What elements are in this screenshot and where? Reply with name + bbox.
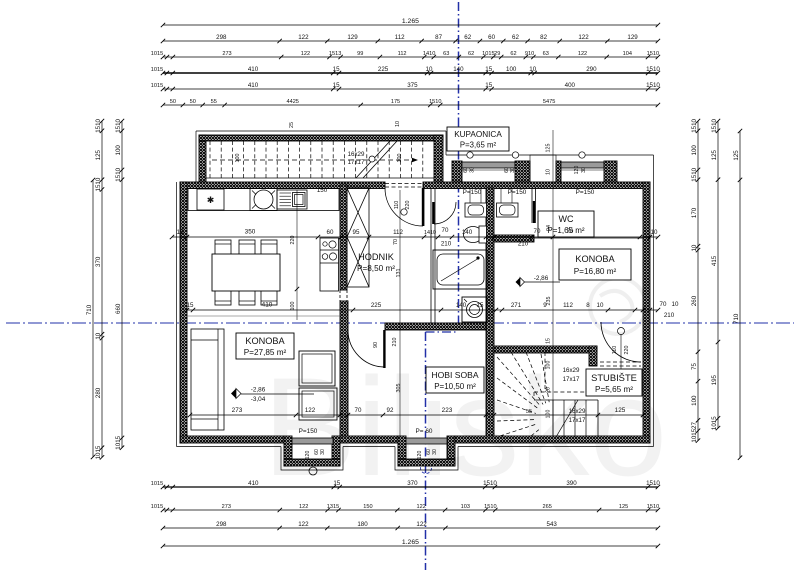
svg-text:175: 175 bbox=[391, 99, 400, 105]
svg-text:KUPAONICA: KUPAONICA bbox=[454, 130, 502, 139]
svg-text:1513: 1513 bbox=[329, 51, 341, 57]
svg-text:220: 220 bbox=[290, 236, 296, 245]
svg-text:10: 10 bbox=[426, 66, 433, 73]
svg-text:125: 125 bbox=[619, 504, 628, 510]
svg-text:223: 223 bbox=[442, 407, 453, 414]
svg-text:15: 15 bbox=[485, 82, 492, 89]
svg-text:10: 10 bbox=[597, 302, 604, 309]
svg-text:-3,04: -3,04 bbox=[251, 396, 266, 403]
svg-text:10: 10 bbox=[95, 332, 102, 339]
svg-text:P=3,65 m²: P=3,65 m² bbox=[460, 141, 497, 150]
svg-text:125: 125 bbox=[615, 407, 626, 414]
svg-text:1510: 1510 bbox=[647, 504, 659, 510]
svg-text:375: 375 bbox=[407, 82, 418, 89]
svg-text:100: 100 bbox=[546, 361, 552, 370]
svg-text:17x17: 17x17 bbox=[569, 417, 586, 424]
svg-text:210: 210 bbox=[392, 338, 398, 347]
svg-text:131: 131 bbox=[396, 269, 402, 278]
svg-text:100: 100 bbox=[397, 154, 403, 163]
svg-text:16x29: 16x29 bbox=[348, 151, 365, 158]
svg-text:400: 400 bbox=[565, 82, 576, 89]
svg-text:20: 20 bbox=[546, 387, 552, 393]
svg-text:50: 50 bbox=[170, 99, 176, 105]
svg-text:10: 10 bbox=[395, 121, 401, 127]
svg-text:94: 94 bbox=[546, 225, 552, 231]
svg-text:710: 710 bbox=[733, 313, 740, 324]
svg-text:210: 210 bbox=[441, 241, 452, 248]
svg-text:120: 120 bbox=[417, 451, 423, 460]
svg-text:P=16,80 m²: P=16,80 m² bbox=[574, 267, 617, 276]
svg-text:17x17: 17x17 bbox=[348, 159, 365, 166]
svg-text:350: 350 bbox=[245, 229, 256, 236]
svg-text:P= 60: P= 60 bbox=[416, 428, 433, 435]
svg-text:55: 55 bbox=[526, 409, 532, 415]
svg-text:220: 220 bbox=[405, 201, 411, 210]
svg-text:17x17: 17x17 bbox=[563, 376, 580, 383]
svg-text:1510: 1510 bbox=[646, 82, 660, 89]
svg-text:70: 70 bbox=[393, 239, 399, 245]
svg-text:63: 63 bbox=[543, 51, 549, 57]
svg-text:95: 95 bbox=[353, 229, 360, 236]
svg-text:70: 70 bbox=[534, 228, 541, 235]
svg-text:HOBI SOBA: HOBI SOBA bbox=[431, 370, 479, 380]
svg-text:195: 195 bbox=[711, 374, 718, 385]
svg-text:660: 660 bbox=[115, 303, 122, 314]
svg-text:30: 30 bbox=[320, 449, 326, 455]
svg-text:110: 110 bbox=[612, 346, 618, 355]
svg-text:298: 298 bbox=[216, 34, 227, 41]
svg-text:120: 120 bbox=[305, 451, 311, 460]
svg-text:140: 140 bbox=[462, 229, 473, 236]
svg-text:1015: 1015 bbox=[151, 83, 163, 89]
svg-text:P=5,65 m²: P=5,65 m² bbox=[595, 385, 633, 394]
svg-text:122: 122 bbox=[298, 34, 309, 41]
svg-text:100: 100 bbox=[691, 395, 698, 406]
svg-text:100: 100 bbox=[506, 66, 517, 73]
svg-text:-2,86: -2,86 bbox=[534, 275, 549, 282]
svg-text:140: 140 bbox=[456, 302, 467, 309]
svg-text:1.265: 1.265 bbox=[402, 18, 419, 25]
svg-text:1510: 1510 bbox=[429, 99, 441, 105]
svg-text:103: 103 bbox=[461, 504, 470, 510]
svg-text:P=8,50 m²: P=8,50 m² bbox=[357, 264, 395, 273]
svg-text:15: 15 bbox=[177, 229, 184, 236]
svg-text:370: 370 bbox=[95, 256, 102, 267]
svg-text:100: 100 bbox=[235, 154, 241, 163]
svg-text:129: 129 bbox=[627, 34, 638, 41]
svg-text:8: 8 bbox=[586, 302, 590, 309]
svg-text:16x29: 16x29 bbox=[569, 408, 586, 415]
svg-text:125: 125 bbox=[546, 144, 552, 153]
svg-text:129: 129 bbox=[347, 34, 358, 41]
svg-text:543: 543 bbox=[547, 521, 558, 528]
svg-text:122: 122 bbox=[417, 504, 426, 510]
svg-text:150: 150 bbox=[363, 504, 372, 510]
svg-text:104: 104 bbox=[623, 51, 632, 57]
svg-text:15: 15 bbox=[333, 480, 340, 487]
svg-text:90: 90 bbox=[373, 342, 379, 348]
svg-text:82: 82 bbox=[540, 34, 547, 41]
svg-text:P=27,85 m²: P=27,85 m² bbox=[244, 348, 287, 357]
svg-text:210: 210 bbox=[518, 241, 529, 248]
svg-text:10: 10 bbox=[529, 66, 536, 73]
svg-text:62: 62 bbox=[468, 51, 474, 57]
svg-text:122: 122 bbox=[301, 51, 310, 57]
svg-text:1315: 1315 bbox=[327, 504, 339, 510]
svg-text:1015: 1015 bbox=[482, 51, 494, 57]
svg-text:710: 710 bbox=[86, 304, 93, 315]
svg-text:273: 273 bbox=[222, 51, 231, 57]
svg-text:120: 120 bbox=[574, 166, 580, 175]
svg-text:273: 273 bbox=[232, 407, 243, 414]
svg-text:10: 10 bbox=[691, 244, 698, 251]
svg-text:99: 99 bbox=[357, 51, 363, 57]
svg-text:✱: ✱ bbox=[207, 195, 215, 205]
svg-text:122: 122 bbox=[298, 521, 309, 528]
svg-text:1510: 1510 bbox=[115, 167, 122, 181]
svg-text:1410: 1410 bbox=[423, 51, 435, 57]
svg-text:50: 50 bbox=[190, 99, 196, 105]
svg-text:1510: 1510 bbox=[691, 167, 698, 181]
svg-text:100: 100 bbox=[546, 410, 552, 419]
svg-text:415: 415 bbox=[711, 255, 718, 266]
svg-text:1510: 1510 bbox=[484, 504, 496, 510]
svg-text:63: 63 bbox=[443, 51, 449, 57]
svg-text:370: 370 bbox=[407, 480, 418, 487]
svg-text:125: 125 bbox=[711, 149, 718, 160]
svg-text:410: 410 bbox=[248, 66, 259, 73]
svg-text:210: 210 bbox=[664, 312, 675, 319]
svg-text:29: 29 bbox=[494, 51, 500, 57]
svg-text:122: 122 bbox=[416, 521, 427, 528]
svg-text:10: 10 bbox=[546, 348, 552, 354]
svg-text:122: 122 bbox=[299, 504, 308, 510]
svg-text:70: 70 bbox=[442, 227, 449, 234]
svg-text:1510: 1510 bbox=[647, 51, 659, 57]
svg-text:305: 305 bbox=[396, 384, 402, 393]
svg-text:170: 170 bbox=[691, 207, 698, 218]
svg-text:270: 270 bbox=[340, 270, 346, 279]
svg-text:100: 100 bbox=[290, 302, 296, 311]
svg-text:1510: 1510 bbox=[711, 118, 718, 132]
svg-text:25: 25 bbox=[289, 122, 295, 128]
svg-text:100: 100 bbox=[115, 145, 122, 156]
svg-text:62: 62 bbox=[512, 34, 519, 41]
svg-text:112: 112 bbox=[395, 34, 405, 41]
svg-text:910: 910 bbox=[525, 51, 534, 57]
svg-text:273: 273 bbox=[222, 504, 231, 510]
svg-text:15: 15 bbox=[485, 66, 492, 73]
svg-text:15: 15 bbox=[333, 82, 340, 89]
svg-text:1.265: 1.265 bbox=[402, 539, 419, 546]
svg-text:260: 260 bbox=[691, 295, 698, 306]
svg-text:410: 410 bbox=[262, 302, 273, 309]
svg-text:92: 92 bbox=[387, 407, 394, 414]
svg-text:1410: 1410 bbox=[424, 230, 436, 236]
svg-text:1015: 1015 bbox=[151, 504, 163, 510]
svg-text:62: 62 bbox=[464, 34, 471, 41]
svg-text:150: 150 bbox=[317, 187, 328, 194]
svg-text:410: 410 bbox=[248, 82, 259, 89]
svg-text:1015: 1015 bbox=[95, 445, 102, 459]
svg-text:390: 390 bbox=[566, 480, 577, 487]
svg-text:27: 27 bbox=[691, 422, 698, 429]
svg-text:125: 125 bbox=[733, 150, 740, 161]
svg-text:4425: 4425 bbox=[286, 99, 298, 105]
svg-text:235: 235 bbox=[546, 297, 552, 306]
svg-text:125: 125 bbox=[95, 149, 102, 160]
svg-text:60: 60 bbox=[463, 167, 469, 173]
svg-text:100: 100 bbox=[691, 145, 698, 156]
svg-text:265: 265 bbox=[543, 504, 552, 510]
svg-text:5475: 5475 bbox=[543, 99, 555, 105]
svg-text:1510: 1510 bbox=[646, 66, 660, 73]
svg-text:1510: 1510 bbox=[483, 480, 497, 487]
svg-text:30: 30 bbox=[510, 167, 516, 173]
svg-text:55: 55 bbox=[211, 99, 217, 105]
svg-text:410: 410 bbox=[248, 480, 259, 487]
svg-text:110: 110 bbox=[394, 201, 400, 210]
svg-text:30: 30 bbox=[432, 449, 438, 455]
svg-text:180: 180 bbox=[357, 521, 368, 528]
svg-text:P=150: P=150 bbox=[299, 428, 318, 435]
svg-text:298: 298 bbox=[216, 521, 227, 528]
svg-text:1015: 1015 bbox=[115, 435, 122, 449]
svg-text:75: 75 bbox=[691, 363, 698, 370]
svg-text:1015: 1015 bbox=[151, 481, 163, 487]
svg-text:122: 122 bbox=[578, 34, 589, 41]
svg-text:70: 70 bbox=[567, 229, 574, 235]
svg-text:P=10,50 m²: P=10,50 m² bbox=[434, 382, 476, 391]
svg-text:225: 225 bbox=[371, 302, 382, 309]
svg-text:P=150: P=150 bbox=[576, 189, 595, 196]
svg-text:P=150: P=150 bbox=[463, 189, 482, 196]
svg-text:122: 122 bbox=[305, 407, 316, 414]
svg-text:15: 15 bbox=[477, 302, 484, 309]
svg-text:290: 290 bbox=[586, 66, 597, 73]
svg-text:15: 15 bbox=[187, 302, 194, 309]
svg-text:15: 15 bbox=[333, 66, 340, 73]
svg-text:10: 10 bbox=[672, 301, 679, 308]
svg-text:1015: 1015 bbox=[691, 428, 698, 442]
svg-text:225: 225 bbox=[378, 66, 389, 73]
svg-text:60: 60 bbox=[327, 229, 334, 236]
svg-text:220: 220 bbox=[624, 346, 630, 355]
svg-text:HODNIK: HODNIK bbox=[358, 252, 395, 262]
svg-text:10: 10 bbox=[651, 229, 658, 236]
svg-text:1510: 1510 bbox=[95, 118, 102, 132]
svg-text:87: 87 bbox=[435, 34, 442, 41]
svg-text:STUBIŠTE: STUBIŠTE bbox=[591, 372, 637, 383]
svg-text:WC: WC bbox=[559, 214, 574, 224]
svg-text:1510: 1510 bbox=[95, 177, 102, 191]
svg-text:140: 140 bbox=[453, 66, 464, 73]
svg-text:1015: 1015 bbox=[151, 67, 163, 73]
svg-text:15: 15 bbox=[546, 338, 552, 344]
svg-text:70: 70 bbox=[355, 407, 362, 414]
svg-text:122: 122 bbox=[578, 51, 587, 57]
svg-text:10: 10 bbox=[546, 169, 552, 175]
svg-text:112: 112 bbox=[393, 229, 403, 236]
svg-text:70: 70 bbox=[660, 301, 667, 308]
svg-text:62: 62 bbox=[510, 51, 516, 57]
svg-text:P=150: P=150 bbox=[508, 189, 527, 196]
svg-text:30: 30 bbox=[581, 167, 587, 173]
svg-text:280: 280 bbox=[95, 387, 102, 398]
svg-text:KONOBA: KONOBA bbox=[575, 254, 615, 264]
svg-text:1015: 1015 bbox=[711, 416, 718, 430]
svg-text:1510: 1510 bbox=[646, 480, 660, 487]
svg-text:271: 271 bbox=[511, 302, 522, 309]
svg-text:KONOBA: KONOBA bbox=[245, 336, 285, 346]
svg-text:1510: 1510 bbox=[115, 118, 122, 132]
svg-text:112: 112 bbox=[398, 51, 407, 57]
svg-text:30: 30 bbox=[470, 167, 476, 173]
svg-text:1510: 1510 bbox=[691, 118, 698, 132]
svg-text:-2,86: -2,86 bbox=[251, 387, 266, 394]
svg-text:1015: 1015 bbox=[151, 51, 163, 57]
svg-text:60: 60 bbox=[488, 34, 495, 41]
svg-text:112: 112 bbox=[563, 302, 573, 309]
svg-text:16x29: 16x29 bbox=[563, 367, 580, 374]
